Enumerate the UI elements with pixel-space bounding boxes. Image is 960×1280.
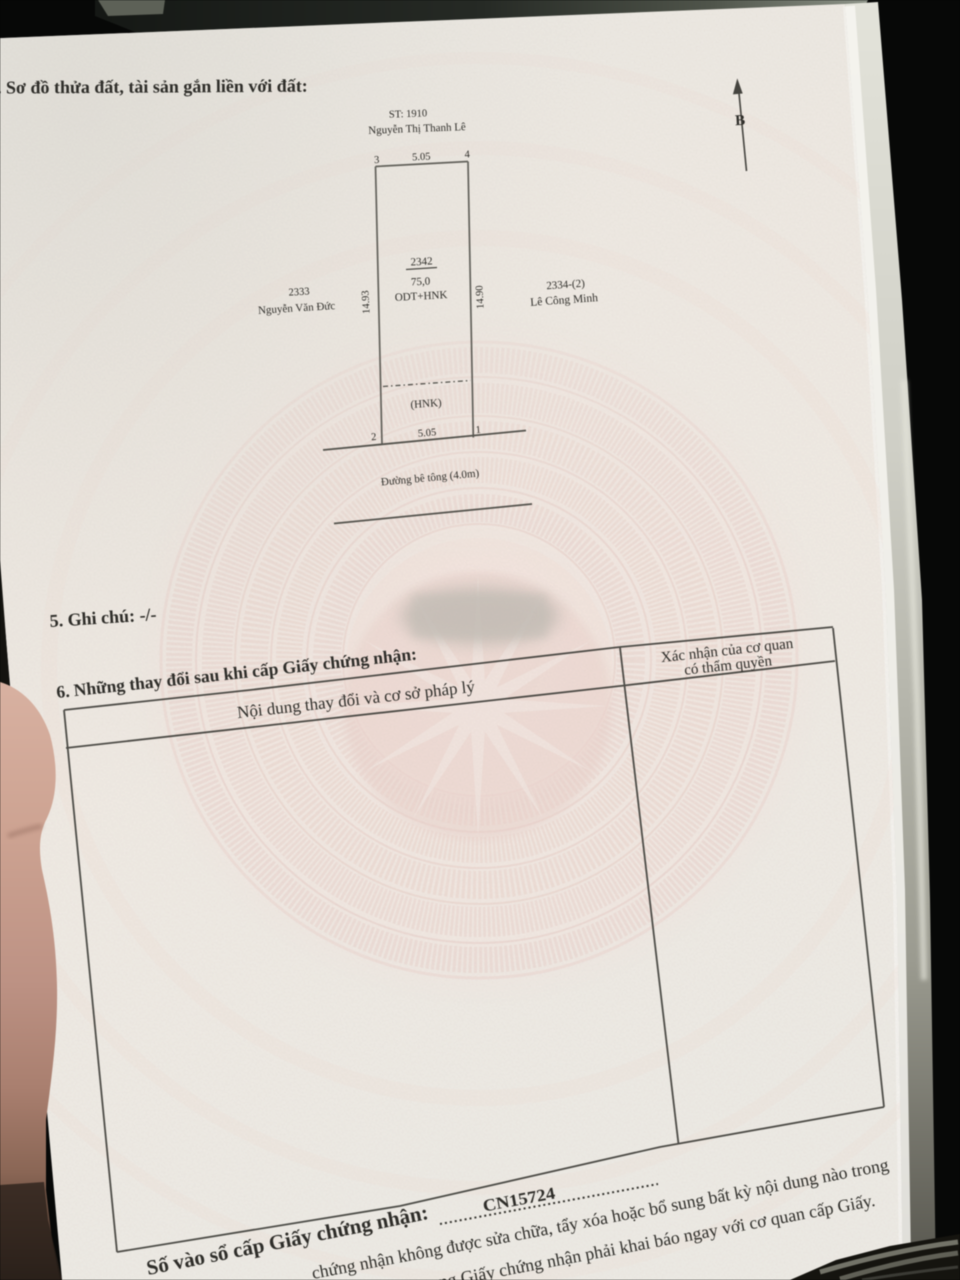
svg-text:3. Sơ đồ thửa đất, tài sản gắn: 3. Sơ đồ thửa đất, tài sản gắn liền với … (0, 76, 308, 98)
svg-text:ST: 1910: ST: 1910 (389, 108, 428, 120)
svg-text:14.93: 14.93 (360, 290, 372, 314)
svg-text:B: B (735, 113, 746, 130)
svg-text:5.05: 5.05 (412, 152, 431, 164)
svg-text:14.90: 14.90 (474, 285, 486, 309)
svg-text:75,0: 75,0 (411, 275, 431, 288)
svg-text:5.05: 5.05 (418, 427, 437, 439)
svg-text:3: 3 (374, 155, 380, 166)
svg-text:2: 2 (371, 432, 377, 443)
svg-text:(HNK): (HNK) (410, 397, 442, 411)
svg-text:2342: 2342 (410, 255, 433, 268)
svg-text:2333: 2333 (288, 286, 310, 298)
